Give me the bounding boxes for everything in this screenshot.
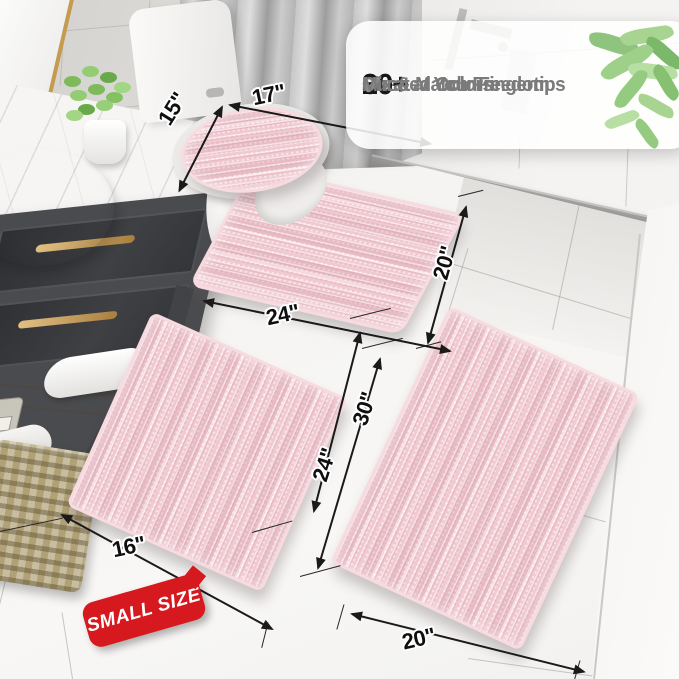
plant-leaf — [100, 72, 117, 83]
grout-line — [62, 612, 74, 679]
plant-leaf — [70, 90, 87, 101]
feature-label: Mix & Match Freedom — [362, 74, 549, 97]
plant-leaf — [82, 66, 99, 77]
plant-pot — [84, 120, 126, 164]
plant-leaf — [66, 110, 83, 121]
plant-leaf — [633, 116, 662, 150]
plant-leaf — [96, 100, 113, 111]
counter-plant — [58, 64, 144, 174]
corner-plant — [580, 0, 679, 160]
bathroom-product-scene: 15" 17" 24" 20" 16" 24" 30" 20" SMALL SI… — [0, 0, 679, 679]
plant-leaf — [64, 76, 81, 87]
plant-leaf — [88, 84, 105, 95]
